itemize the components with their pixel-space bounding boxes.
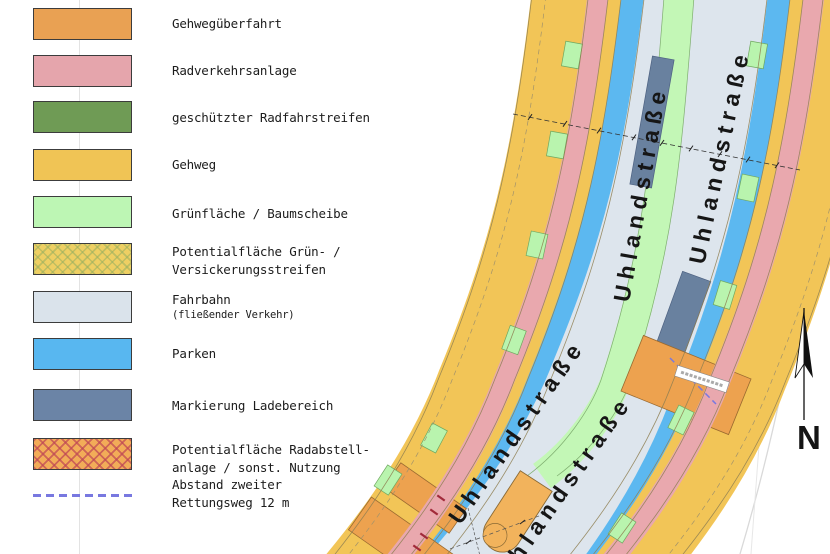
legend-swatch-radverkehrsanlage xyxy=(33,55,132,87)
legend-label: Potentialfläche Radabstell- xyxy=(172,442,370,457)
legend-label: Fahrbahn xyxy=(172,292,231,307)
legend-label: Radverkehrsanlage xyxy=(172,63,297,78)
legend-swatch-ladebereich xyxy=(33,389,132,421)
legend-swatch-gehwegueberfahrt xyxy=(33,8,132,40)
legend-label: geschützter Radfahrstreifen xyxy=(172,110,370,125)
legend-dashed-rescue-line xyxy=(33,494,132,497)
legend-swatch-geschuetzter-radfahrstreifen xyxy=(33,101,132,133)
legend-label-line2: (fließender Verkehr) xyxy=(172,309,294,321)
legend-label: Markierung Ladebereich xyxy=(172,398,333,413)
legend-swatch-potentialflaeche-radabstellanlage xyxy=(33,438,132,470)
legend-label: Gehweg xyxy=(172,157,216,172)
legend-swatch-fahrbahn xyxy=(33,291,132,323)
legend-swatch-potentialflaeche-gruen xyxy=(33,243,132,275)
legend-label-line2: anlage / sonst. Nutzung xyxy=(172,460,341,475)
legend-swatch-gruenflaeche xyxy=(33,196,132,228)
legend-label-line2: Versickerungsstreifen xyxy=(172,262,326,277)
north-letter: N xyxy=(797,419,821,456)
legend-label: Grünfläche / Baumscheibe xyxy=(172,206,348,221)
legend-label: Gehwegüberfahrt xyxy=(172,16,282,31)
legend-label-line2: Rettungsweg 12 m xyxy=(172,495,289,510)
legend-label: Potentialfläche Grün- / xyxy=(172,244,341,259)
legend-label: Abstand zweiter xyxy=(172,477,282,492)
map-legend: Gehwegüberfahrt Radverkehrsanlage geschü… xyxy=(0,0,420,554)
legend-swatch-parken xyxy=(33,338,132,370)
legend-swatch-gehweg xyxy=(33,149,132,181)
plan-canvas: Uhlandstraße Uhlandstraße Uhlandstraße U… xyxy=(0,0,830,554)
legend-label: Parken xyxy=(172,346,216,361)
